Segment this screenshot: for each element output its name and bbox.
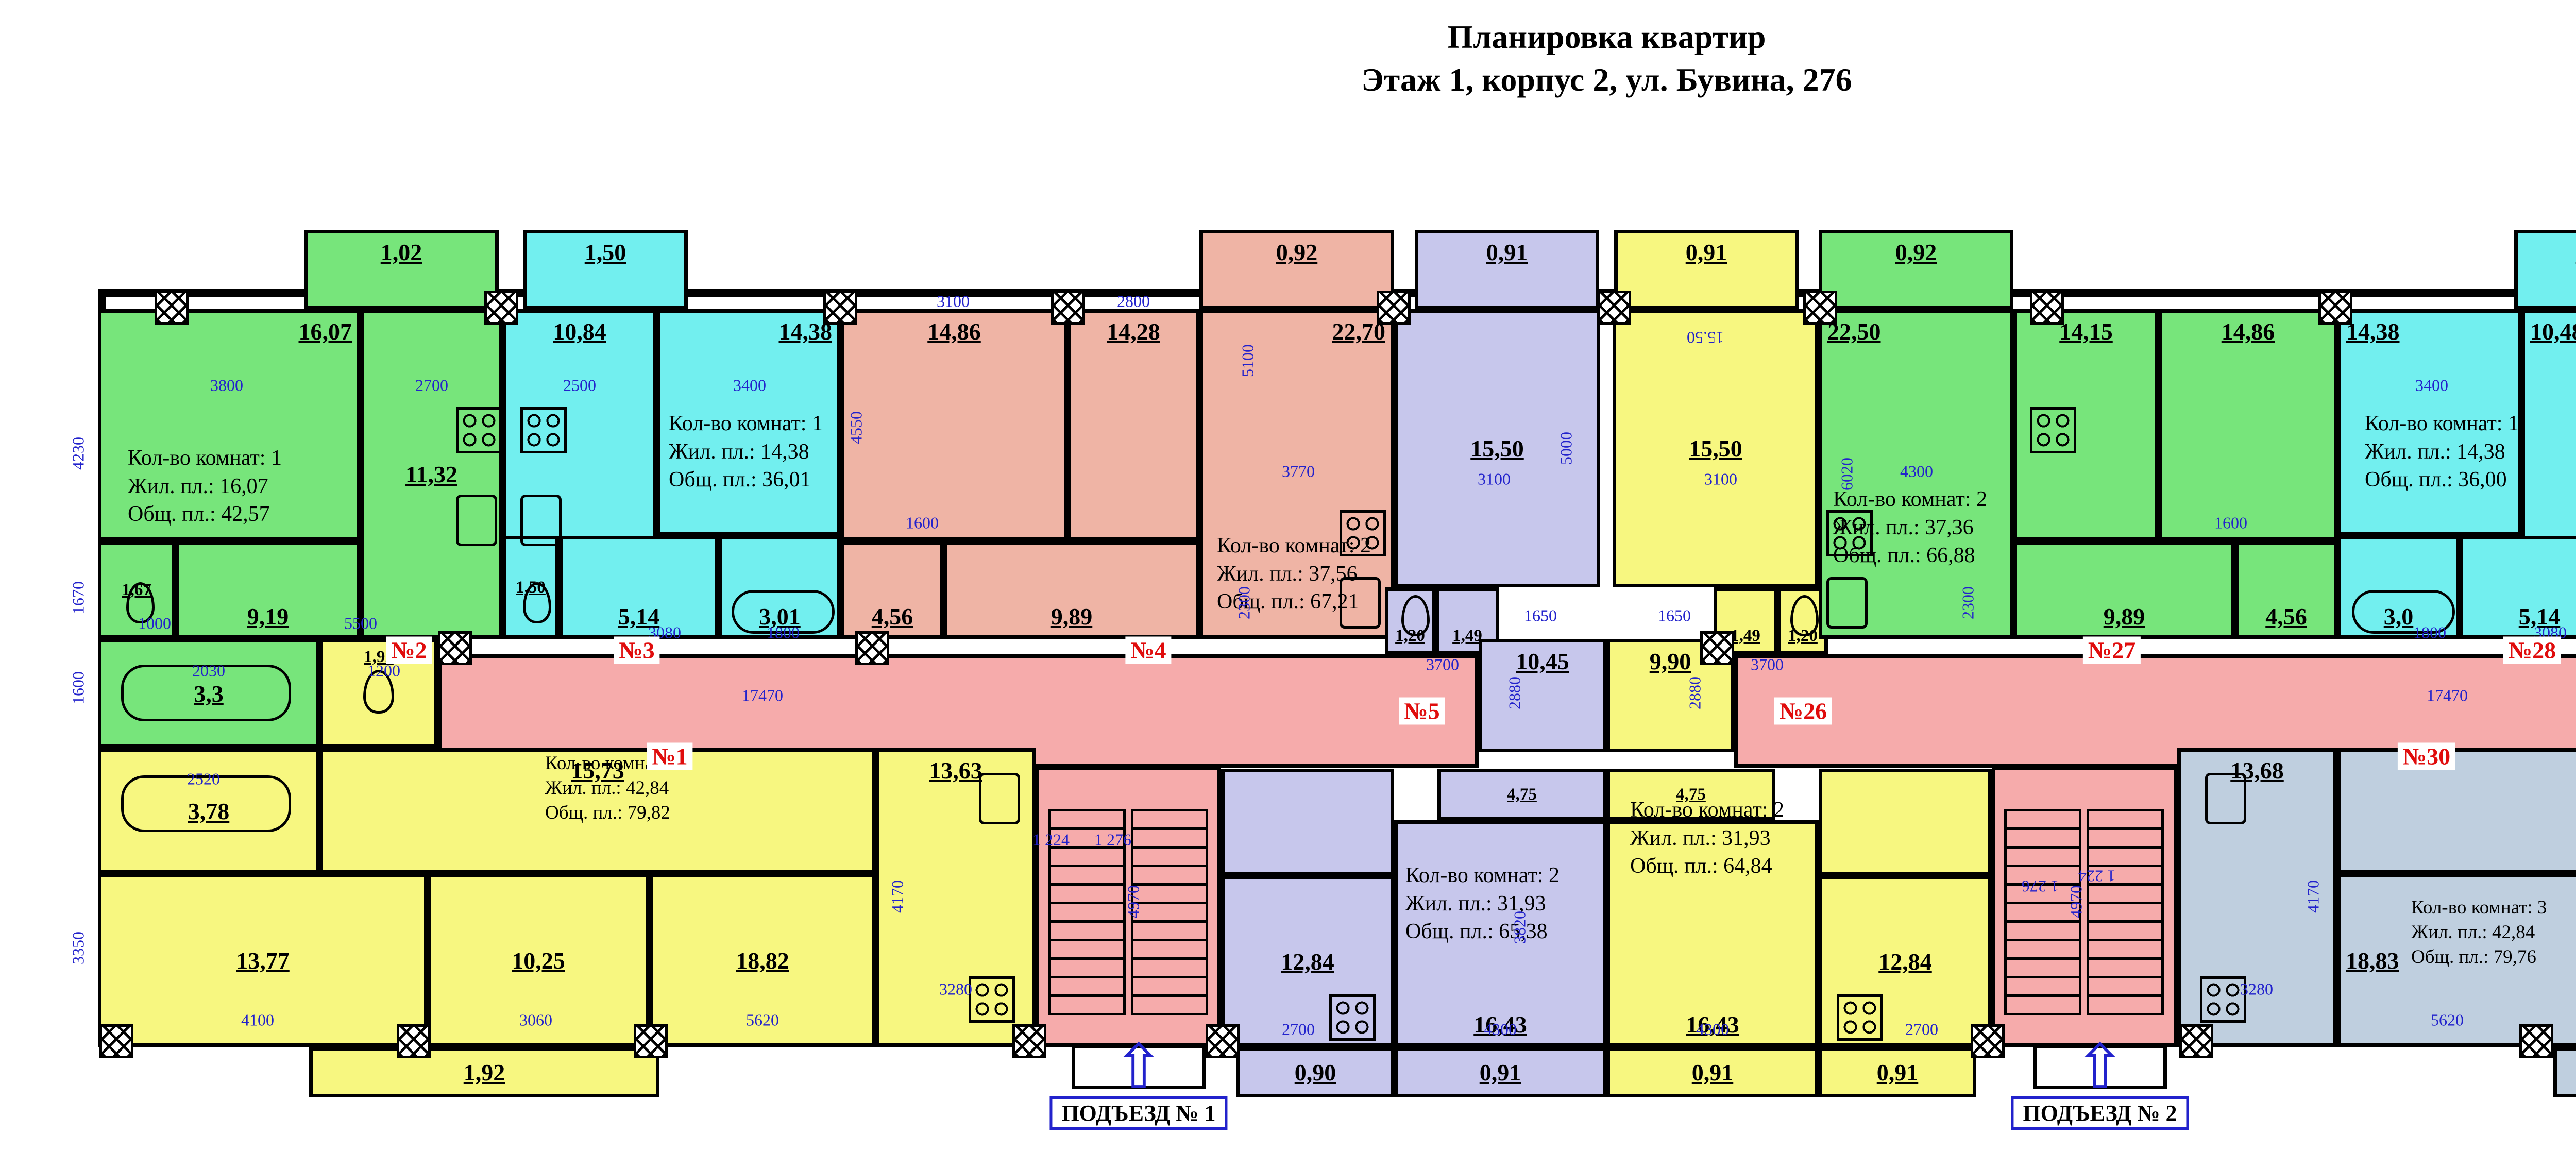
- room-area-label: 14,15: [2059, 318, 2113, 345]
- dimension-label: 4300: [1900, 462, 1933, 481]
- wall-hatch-block: [1597, 291, 1631, 325]
- wall-hatch-block: [1051, 291, 1085, 325]
- room-area-label: 4,56: [872, 603, 913, 630]
- dimension-label: 4170: [888, 880, 907, 913]
- apartment-door-number: №5: [1399, 698, 1445, 725]
- entrance-label: ПОДЪЕЗД № 2: [2011, 1096, 2189, 1130]
- dimension-label: 3100: [1704, 470, 1737, 489]
- room-area-label: 4,75: [1507, 785, 1537, 804]
- room-area-label: 0,91: [1692, 1059, 1734, 1086]
- wall-hatch-block: [2179, 1024, 2213, 1058]
- dimension-label: 2500: [563, 376, 596, 395]
- balcony: 1,02: [304, 230, 499, 309]
- dimension-label: 2300: [1959, 586, 1978, 619]
- wall-hatch-block: [855, 631, 889, 665]
- room-area-label: 13,77: [236, 947, 290, 974]
- wall-hatch-block: [823, 291, 857, 325]
- dimension-label: 2300: [1235, 586, 1254, 619]
- dimension-label: 1600: [2214, 514, 2247, 533]
- apartment-door-number: №28: [2503, 637, 2561, 664]
- sink-icon: [1826, 577, 1868, 629]
- room-area-label: 14,86: [2222, 318, 2275, 345]
- wall-hatch-block: [2318, 291, 2352, 325]
- room-area-label: 9,90: [1650, 648, 1691, 675]
- apartment-door-number: №2: [386, 637, 432, 664]
- entrance-arrow-icon: ⇧: [1113, 1037, 1165, 1098]
- apartment-info-line: Жил. пл.: 42,84: [2411, 920, 2547, 945]
- balcony: 1,92: [2553, 1047, 2576, 1097]
- apartment-info-line: Жил. пл.: 37,36: [1833, 514, 1987, 542]
- room-area-label: 12,84: [1281, 948, 1334, 975]
- apartment-info: Кол-во комнат: 2Жил. пл.: 31,93Общ. пл.:…: [1630, 796, 1784, 881]
- apartment-info-line: Кол-во комнат: 3: [2411, 895, 2547, 920]
- balcony: 0,92: [1819, 230, 2013, 309]
- room-area-label: 15,50: [1470, 435, 1524, 462]
- room-15,50: 15,50: [1613, 309, 1819, 587]
- dimension-label: 15.50: [1687, 328, 1724, 347]
- wall-hatch-block: [1803, 291, 1837, 325]
- dimension-label: 4550: [847, 411, 866, 444]
- room-area-label: 10,45: [1516, 648, 1569, 675]
- room-area-label: 1,02: [381, 239, 422, 266]
- wall-hatch-block: [1012, 1024, 1046, 1058]
- dimension-label: 3280: [939, 980, 972, 999]
- wall-hatch-block: [1206, 1024, 1240, 1058]
- dimension-label: 3700: [1751, 655, 1784, 674]
- apartment-info-line: Кол-во комнат: 2: [1630, 796, 1784, 824]
- room-area-label: 18,82: [736, 947, 789, 974]
- room-5,14: 5,14: [559, 536, 719, 639]
- sink-icon: [520, 495, 562, 546]
- apartment-door-number: №27: [2083, 637, 2141, 664]
- room-area-label: 14,86: [927, 318, 981, 345]
- balcony: 0,91: [1614, 230, 1799, 309]
- apartment-info-line: Кол-во комнат: 1: [669, 410, 823, 438]
- apartment-info-line: Жил. пл.: 14,38: [669, 438, 823, 466]
- apartment-info-line: Общ. пл.: 79,82: [545, 801, 681, 825]
- dimension-label: 4970: [1124, 885, 1143, 918]
- dimension-label: 2880: [1505, 676, 1524, 709]
- apartment-info-line: Жил. пл.: 31,93: [1405, 890, 1560, 918]
- dimension-label: 4300: [1696, 1020, 1729, 1039]
- dimension-label: 3280: [2240, 980, 2273, 999]
- apartment-door-number: №4: [1125, 637, 1171, 664]
- dimension-label: 1800: [767, 623, 800, 642]
- room-14,86: 14,86: [2159, 309, 2337, 541]
- room-area-label: 9,89: [2104, 603, 2145, 630]
- room-area-label: 10,48: [2530, 318, 2576, 345]
- room-area-label: 0,91: [1877, 1059, 1919, 1086]
- room-15,71: 15,71: [2337, 748, 2576, 874]
- dimension-label: 3700: [1426, 655, 1459, 674]
- dimension-label: 1800: [2413, 623, 2446, 642]
- wall-hatch-block: [2030, 291, 2064, 325]
- room-area-label: 18,83: [2346, 947, 2399, 974]
- apartment-info-line: Общ. пл.: 42,57: [128, 500, 282, 529]
- dimension-label: 4300: [1484, 1020, 1517, 1039]
- room-area-label: 9,89: [1051, 603, 1093, 630]
- dimension-label: 2520: [187, 770, 220, 789]
- room-10,45: 10,45: [1479, 639, 1606, 752]
- apartment-info: Кол-во комнат: 2Жил. пл.: 31,93Общ. пл.:…: [1405, 861, 1560, 946]
- apartment-door-number: №1: [647, 743, 692, 770]
- apartment-info: Кол-во комнат: 1Жил. пл.: 14,38Общ. пл.:…: [2365, 410, 2519, 494]
- apartment-info-line: Общ. пл.: 36,00: [2365, 466, 2519, 494]
- stove-icon: [2030, 407, 2076, 453]
- title-line-2: Этаж 1, корпус 2, ул. Бувина, 276: [0, 58, 2576, 101]
- dimension-label: 17470: [742, 686, 783, 705]
- wall-hatch-block: [1971, 1024, 2005, 1058]
- room-area-label: 1,92: [464, 1059, 505, 1086]
- sink-icon: [979, 773, 1020, 824]
- dimension-label: 6020: [1838, 458, 1857, 490]
- entrance-label: ПОДЪЕЗД № 1: [1049, 1096, 1227, 1130]
- dimension-label: 2800: [1117, 292, 1150, 311]
- apartment-info: Кол-во комнат: 1Жил. пл.: 14,38Общ. пл.:…: [669, 410, 823, 494]
- dimension-label: 5000: [1557, 432, 1576, 465]
- wall-hatch-block: [1377, 291, 1411, 325]
- wall-hatch-block: [484, 291, 518, 325]
- wall-hatch-block: [2519, 1024, 2553, 1058]
- entrance-arrow-icon: ⇧: [2074, 1037, 2126, 1098]
- balcony: 0,91: [1415, 230, 1599, 309]
- room-area-label: 9,19: [247, 603, 289, 630]
- wall-hatch-block: [438, 631, 472, 665]
- room-area-label: 10,84: [553, 318, 606, 345]
- room-11,32: 11,32: [361, 309, 502, 639]
- dimension-label: 3770: [1282, 462, 1315, 481]
- dimension-label: 3100: [1478, 470, 1511, 489]
- stove-icon: [520, 407, 567, 453]
- sink-icon: [2205, 773, 2246, 824]
- apartment-info-line: Жил. пл.: 14,38: [2365, 438, 2519, 466]
- room-area-label: 0,91: [1480, 1059, 1521, 1086]
- room-area-label: 14,38: [2346, 318, 2400, 345]
- room-area-label: 15,50: [1689, 435, 1742, 462]
- room-area-label: 1,49: [1731, 627, 1760, 646]
- dimension-label: 5100: [1239, 344, 1258, 377]
- wall-hatch-block: [1700, 631, 1734, 665]
- room-area-label: 4,56: [2265, 603, 2307, 630]
- balcony: 1,92: [309, 1047, 659, 1097]
- apartment-info-line: Кол-во комнат: 2: [1405, 861, 1560, 890]
- dimension-label: 1000: [138, 614, 171, 633]
- steps-icon: [2087, 809, 2164, 1015]
- stove-icon: [1329, 994, 1376, 1041]
- dimension-label: 2030: [192, 662, 225, 681]
- wall-hatch-block: [99, 1024, 133, 1058]
- stove-icon: [1837, 994, 1883, 1041]
- dimension-label: 3800: [210, 376, 243, 395]
- apartment-info: Кол-во комнат: 1Жил. пл.: 16,07Общ. пл.:…: [128, 444, 282, 529]
- dimension-label: 1 224: [1032, 831, 1070, 850]
- dimension-label: 4170: [2304, 880, 2323, 913]
- dimension-label: 3060: [519, 1011, 552, 1030]
- balcony: 0,92: [1199, 230, 1394, 309]
- balcony: 1,50: [2514, 230, 2576, 309]
- room-9,89: 9,89: [944, 541, 1199, 639]
- hall-segment: [1819, 769, 1992, 876]
- balcony: 1,50: [523, 230, 688, 309]
- apartment-info-line: Жил. пл.: 16,07: [128, 472, 282, 501]
- apartment-info-line: Жил. пл.: 31,93: [1630, 824, 1784, 853]
- wall-hatch-block: [397, 1024, 431, 1058]
- apartment-door-number: №26: [1774, 698, 1832, 725]
- dimension-label: 5500: [344, 614, 377, 633]
- dimension-label: 3100: [937, 292, 970, 311]
- dimension-label: 1200: [367, 662, 400, 681]
- dimension-label: 4230: [69, 437, 88, 470]
- stove-icon: [969, 976, 1015, 1023]
- room-area-label: 0,91: [1686, 239, 1727, 266]
- dimension-label: 1 276: [1094, 831, 1131, 850]
- apartment-info-line: Кол-во комнат: 1: [2365, 410, 2519, 438]
- apartment-info-line: Общ. пл.: 66,88: [1833, 541, 1987, 570]
- stove-icon: [2200, 976, 2246, 1023]
- room-4,56: 4,56: [841, 541, 944, 639]
- apartment-info-line: Жил. пл.: 37,56: [1217, 560, 1371, 588]
- apartment-door-number: №3: [614, 637, 659, 664]
- room-area-label: 0,92: [1895, 239, 1937, 266]
- room-area-label: 11,32: [405, 461, 457, 488]
- apartment-info: Кол-во комнат: 3Жил. пл.: 42,84Общ. пл.:…: [2411, 895, 2547, 970]
- apartment-info-line: Общ. пл.: 36,01: [669, 466, 823, 494]
- room-area-label: 14,28: [1107, 318, 1160, 345]
- dimension-label: 1650: [1524, 606, 1557, 625]
- apartment-info-line: Кол-во комнат: 2: [1217, 532, 1371, 560]
- floor-plan: 1,021,500,920,910,910,921,501,0216,0711,…: [0, 0, 2576, 1168]
- room-4,75: 4,75: [1437, 769, 1606, 820]
- dimension-label: 4100: [241, 1011, 274, 1030]
- hall-segment: [1221, 769, 1394, 876]
- room-area-label: 10,25: [512, 947, 565, 974]
- room-area-label: 16,07: [299, 318, 352, 345]
- title-line-1: Планировка квартир: [0, 15, 2576, 58]
- room-14,86: 14,86: [841, 309, 1067, 541]
- apartment-info-line: Жил. пл.: 42,84: [545, 776, 681, 801]
- balcony: 0,91: [1606, 1047, 1819, 1097]
- dimension-label: 1670: [69, 581, 88, 614]
- sink-icon: [456, 495, 497, 546]
- dimension-label: 5620: [746, 1011, 779, 1030]
- wall-hatch-block: [155, 291, 189, 325]
- dimension-label: 1600: [906, 514, 939, 533]
- apartment-info-line: Общ. пл.: 64,84: [1630, 852, 1784, 881]
- room-area-label: 0,92: [1276, 239, 1318, 266]
- room-area-label: 0,90: [1295, 1059, 1336, 1086]
- room-area-label: 12,84: [1878, 948, 1932, 975]
- stove-icon: [456, 407, 502, 453]
- room-9,89: 9,89: [2013, 541, 2235, 639]
- room-area-label: 1,49: [1452, 627, 1482, 646]
- dimension-label: 1 276: [2022, 877, 2059, 896]
- apartment-info: Кол-во комнат: 2Жил. пл.: 37,36Общ. пл.:…: [1833, 485, 1987, 570]
- dimension-label: 1 224: [2078, 867, 2115, 886]
- dimension-label: 2700: [1905, 1020, 1938, 1039]
- apartment-info-line: Общ. пл.: 79,76: [2411, 945, 2547, 970]
- dimension-label: 2700: [1282, 1020, 1315, 1039]
- dimension-label: 4970: [2067, 885, 2086, 918]
- balcony: 0,91: [1394, 1047, 1606, 1097]
- dimension-label: 2700: [415, 376, 448, 395]
- room-area-label: 1,50: [585, 239, 626, 266]
- room-area-label: 13,63: [929, 757, 982, 784]
- balcony: 0,91: [1819, 1047, 1976, 1097]
- dimension-label: 2880: [1686, 676, 1705, 709]
- dimension-label: 17470: [2427, 686, 2468, 705]
- apartment-info-line: Кол-во комнат: 1: [128, 444, 282, 472]
- wall-hatch-block: [634, 1024, 668, 1058]
- dimension-label: 1650: [1658, 606, 1691, 625]
- room-4,56: 4,56: [2235, 541, 2337, 639]
- room-area-label: 0,91: [1486, 239, 1528, 266]
- room-14,28: 14,28: [1067, 309, 1199, 541]
- apartment-info-line: Общ. пл.: 65,38: [1405, 918, 1560, 946]
- balcony: 0,90: [1236, 1047, 1394, 1097]
- dimension-label: 3400: [733, 376, 766, 395]
- drawing-title: Планировка квартир Этаж 1, корпус 2, ул.…: [0, 15, 2576, 101]
- apartment-door-number: №30: [2398, 743, 2455, 770]
- dimension-label: 3350: [69, 932, 88, 964]
- dimension-label: 1600: [69, 671, 88, 704]
- dimension-label: 5620: [2431, 1011, 2464, 1030]
- room-9,19: 9,19: [175, 541, 361, 639]
- dimension-label: 3400: [2415, 376, 2448, 395]
- dimension-label: 3820: [1511, 911, 1530, 944]
